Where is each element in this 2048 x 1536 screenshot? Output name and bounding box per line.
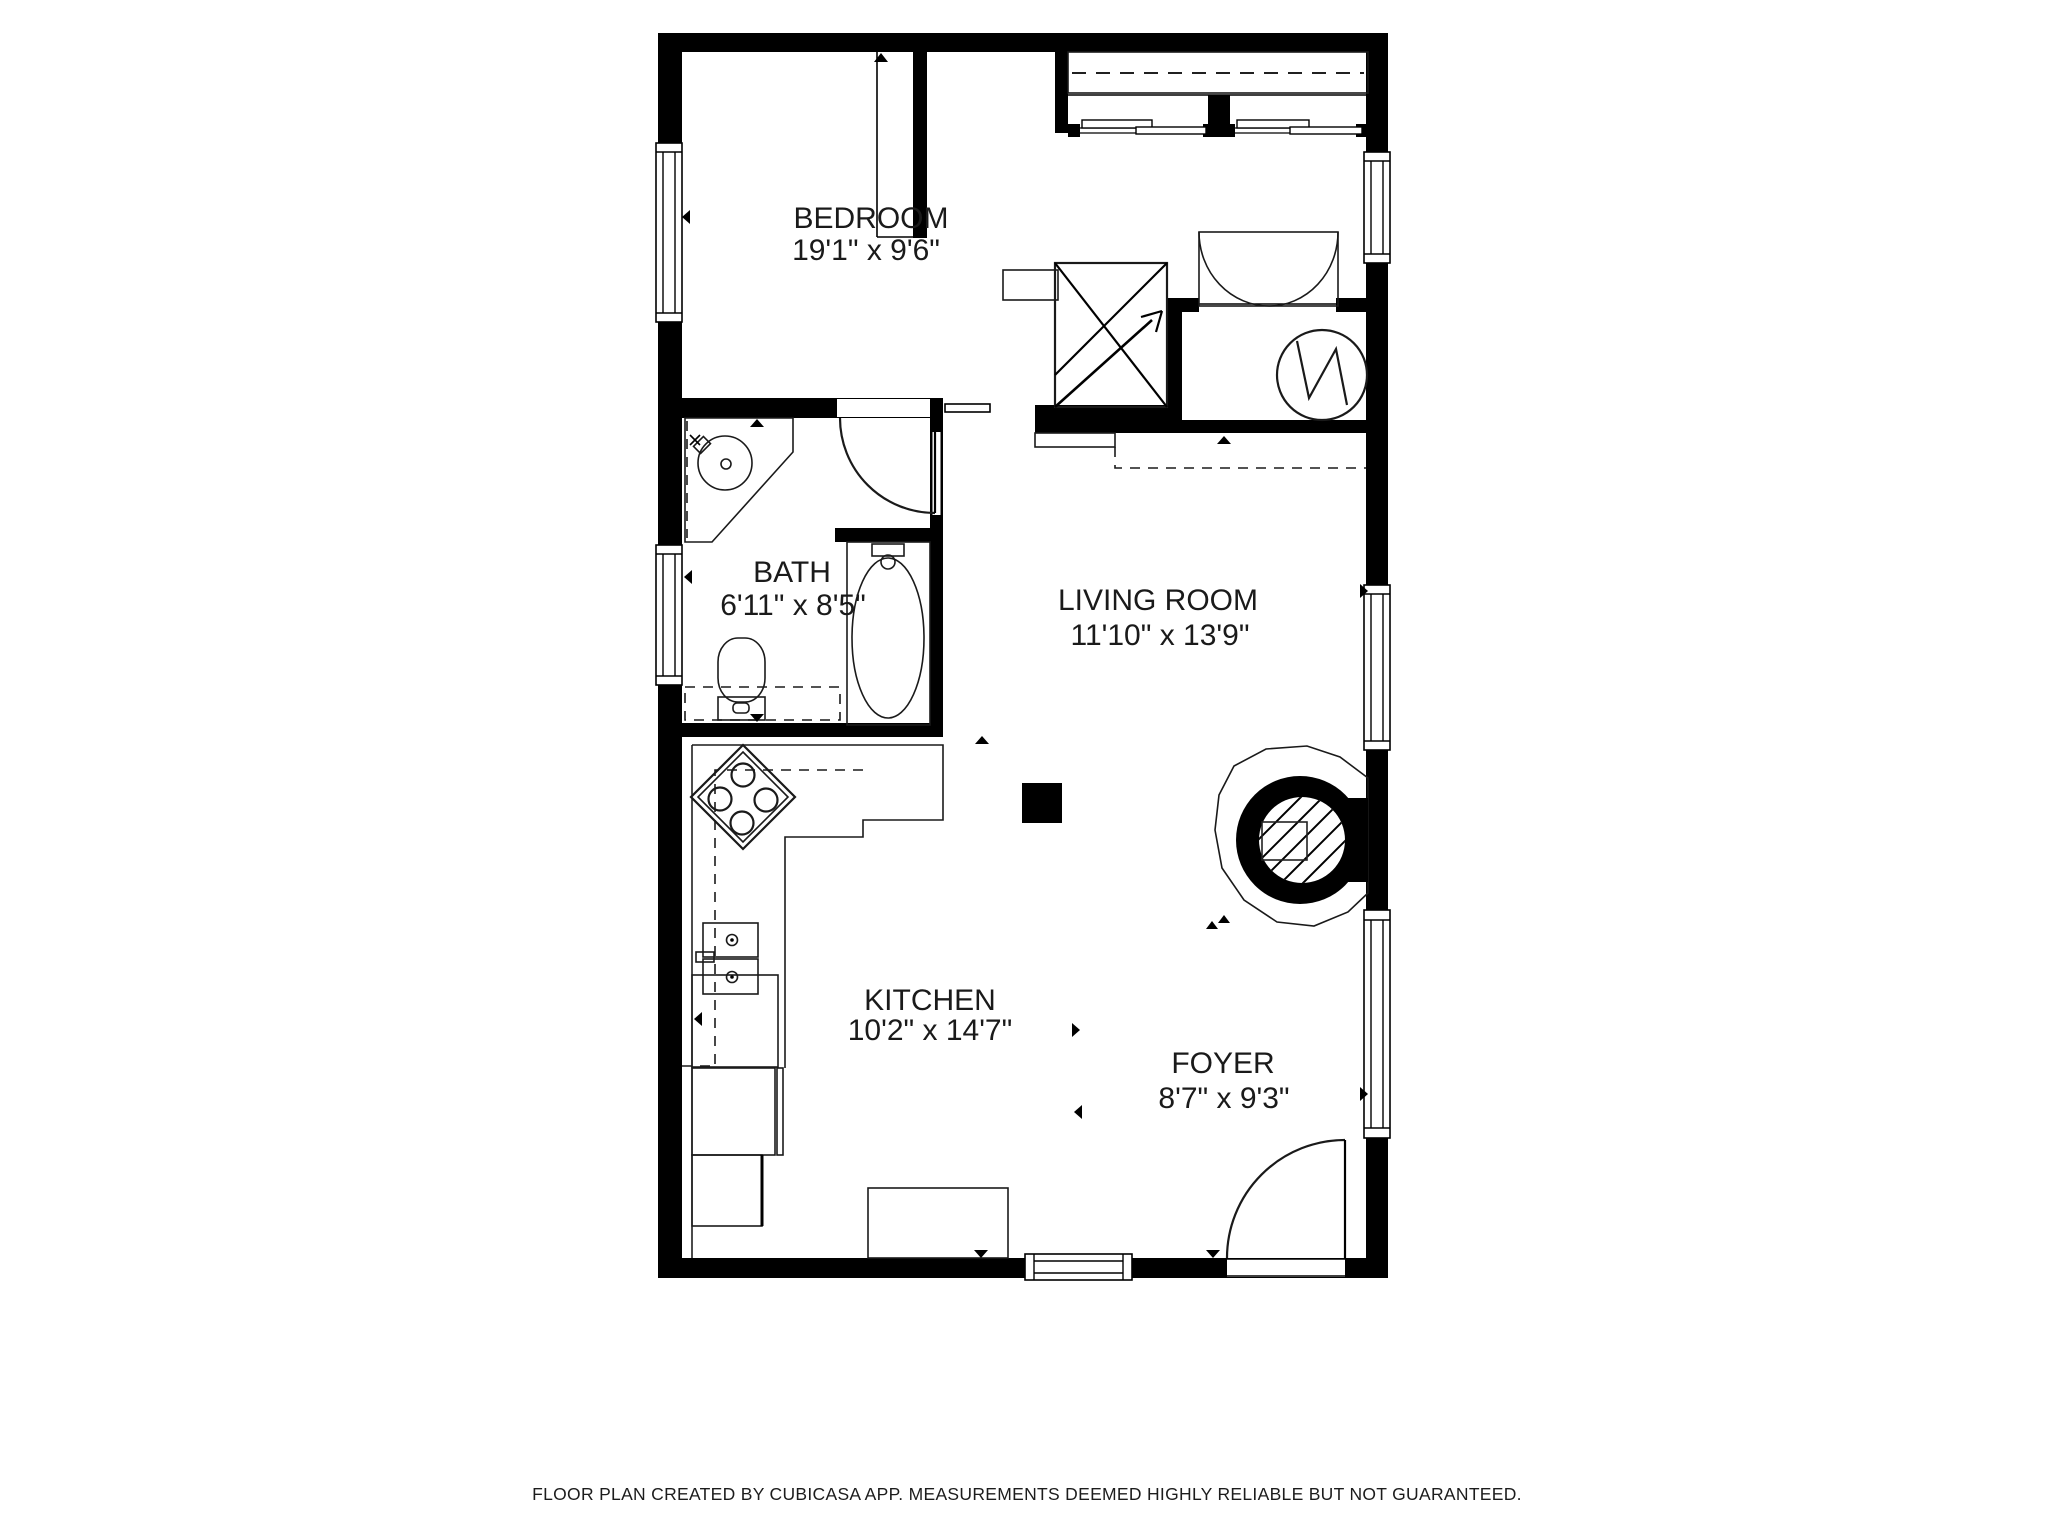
closet-double-doors (1199, 232, 1338, 306)
wall-living-north (1035, 405, 1167, 433)
window-living-right (1364, 585, 1390, 750)
wall-closet-north-right (1336, 298, 1368, 312)
kitchen-sink (696, 923, 758, 994)
column (1022, 783, 1062, 823)
marker-triangle (975, 736, 989, 744)
room-dims-bath: 6'11" x 8'5" (720, 589, 866, 622)
window-bedroom-left (656, 143, 682, 322)
living-room-features (1022, 433, 1368, 978)
toilet (718, 638, 765, 720)
window-foyer-right (1364, 910, 1390, 1138)
wall-wardrobe-strip-left (1068, 124, 1080, 137)
base-cabinet (692, 1068, 775, 1155)
room-labels: BEDROOM 19'1" x 9'6" BATH 6'11" x 8'5" L… (720, 202, 1289, 1115)
entry-door (1227, 1140, 1345, 1277)
doors (837, 232, 1345, 1277)
marker-triangle (1206, 1250, 1220, 1258)
kitchen-counter-dashed (715, 770, 863, 1065)
marker-triangle (974, 1250, 988, 1258)
dining-table (868, 1188, 1008, 1258)
marker-triangle (682, 210, 690, 224)
marker-triangle (874, 53, 888, 62)
bath-door (837, 399, 935, 513)
bedroom-features (877, 48, 1368, 407)
marker-triangle (1206, 921, 1218, 929)
window-bath-left (656, 545, 682, 685)
loft-dashed-line (1115, 447, 1366, 468)
room-label-bedroom: BEDROOM (793, 202, 948, 235)
room-label-bath: BATH (753, 556, 831, 589)
water-heater (1277, 330, 1367, 420)
sliding-door-leaf (1290, 127, 1362, 134)
refrigerator (692, 975, 778, 1067)
wall-top-stub (1055, 33, 1068, 133)
room-label-kitchen: KITCHEN (864, 984, 996, 1017)
room-dims-foyer: 8'7" x 9'3" (1158, 1082, 1289, 1115)
marker-triangle (1074, 1105, 1082, 1119)
room-dims-bedroom: 19'1" x 9'6" (792, 234, 940, 267)
sliding-door-leaf (1136, 127, 1206, 134)
stairs-indicator (1055, 263, 1167, 407)
bathroom-vanity-sink (685, 418, 793, 542)
stove (691, 745, 795, 849)
kitchen-cabinets (692, 975, 783, 1226)
wall-tub-stub (835, 528, 932, 542)
room-label-living-room: LIVING ROOM (1058, 584, 1258, 617)
room-dims-kitchen: 10'2" x 14'7" (848, 1014, 1013, 1047)
pocket-niche (933, 432, 941, 515)
pocket-door (945, 404, 990, 412)
marker-triangle (694, 1012, 702, 1026)
marker-triangle (750, 419, 764, 427)
window-bottom (1025, 1254, 1132, 1280)
wall-wardrobe-strip-mid (1203, 124, 1235, 137)
footer-disclaimer: FLOOR PLAN CREATED BY CUBICASA APP. MEAS… (532, 1484, 1522, 1504)
wall-top (658, 33, 1388, 52)
base-cabinet (692, 1155, 762, 1226)
wall-closet-south (1167, 420, 1368, 433)
marker-triangle (1217, 436, 1231, 444)
wall-closet-north-left (1167, 298, 1199, 312)
marker-triangle (684, 570, 692, 584)
floor-plan-drawing: BEDROOM 19'1" x 9'6" BATH 6'11" x 8'5" L… (0, 0, 2048, 1536)
bedroom-shelf (1003, 270, 1058, 300)
floor-plan-page: BEDROOM 19'1" x 9'6" BATH 6'11" x 8'5" L… (0, 0, 2048, 1536)
fireplace-stove (1215, 702, 1368, 978)
room-dims-living-room: 11'10" x 13'9" (1071, 619, 1250, 652)
window-bedroom-right (1364, 152, 1390, 263)
threshold-step (1035, 433, 1115, 447)
marker-triangle (1072, 1023, 1080, 1037)
room-label-foyer: FOYER (1171, 1047, 1274, 1080)
wall-closet-west (1167, 298, 1182, 433)
bathtub (847, 542, 930, 725)
marker-triangle (1218, 915, 1230, 923)
